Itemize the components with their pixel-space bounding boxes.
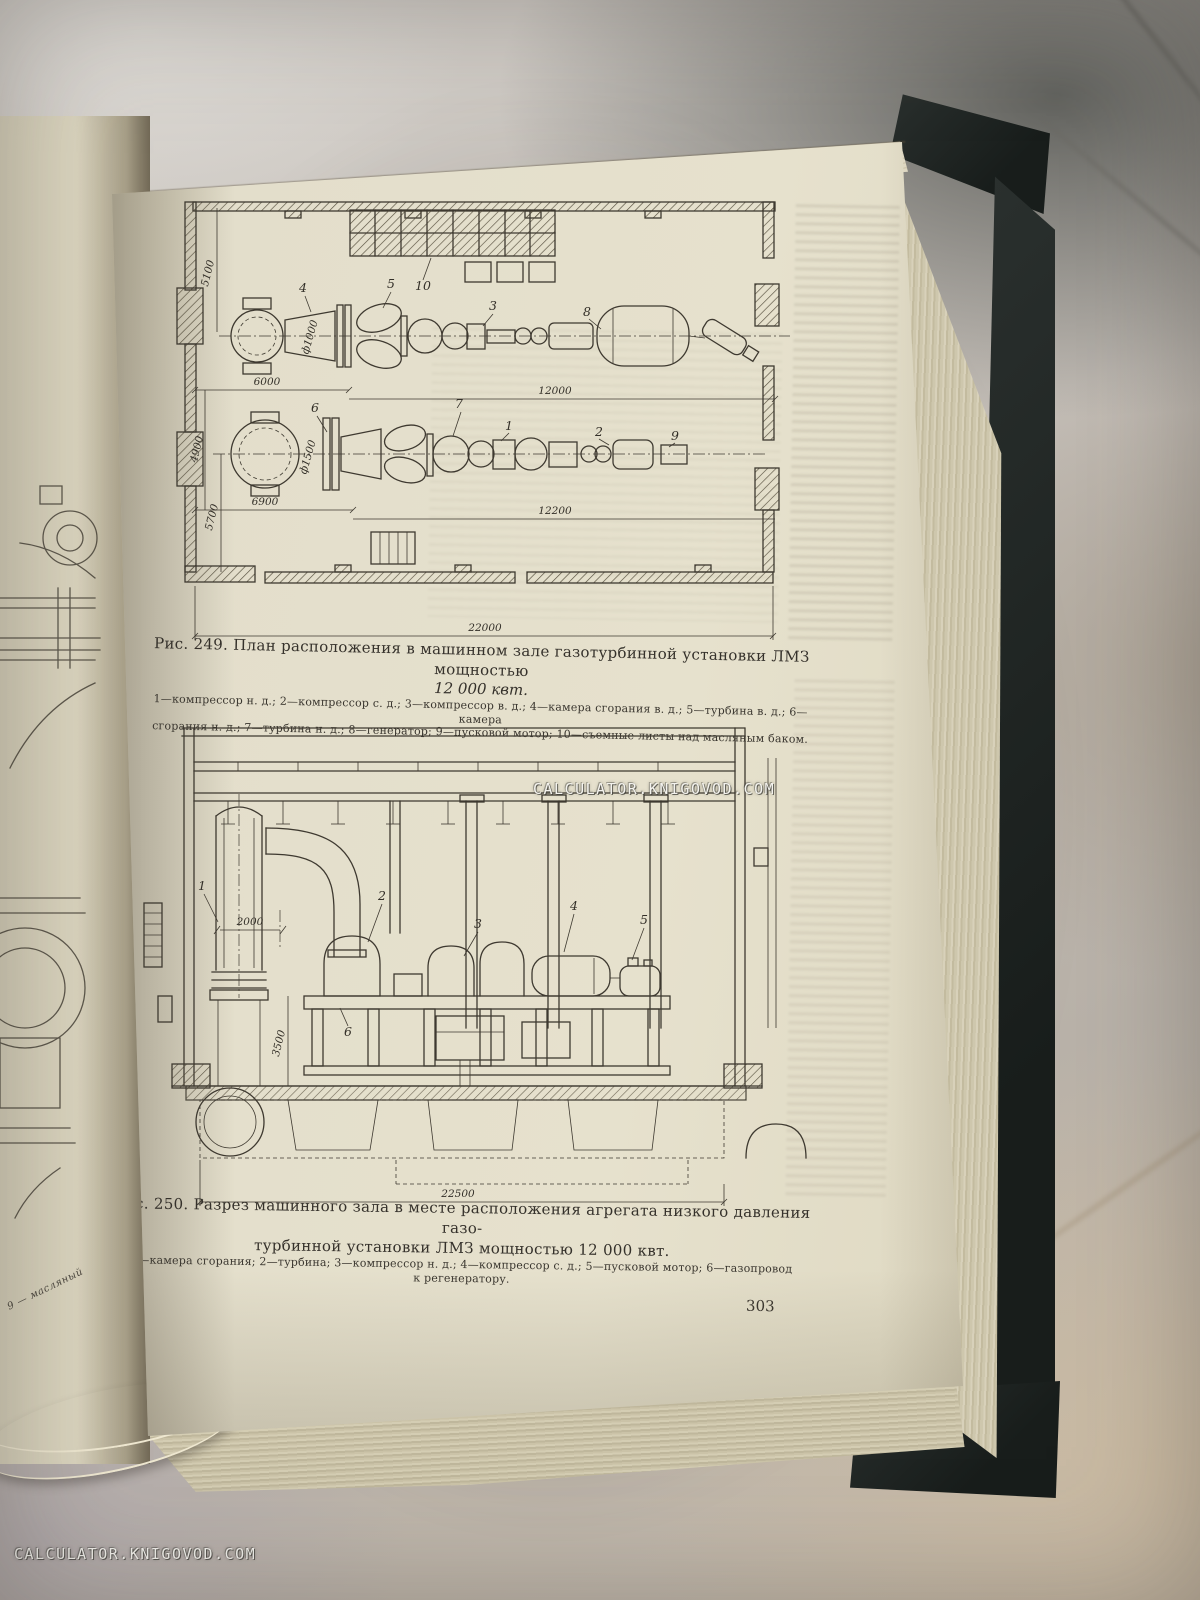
- svg-text:3: 3: [474, 916, 482, 931]
- removable-sheets-panel: [350, 210, 555, 256]
- svg-text:8: 8: [583, 304, 591, 319]
- svg-text:5: 5: [640, 912, 648, 927]
- svg-text:2: 2: [377, 888, 386, 903]
- svg-text:2000: 2000: [236, 916, 264, 928]
- svg-text:10: 10: [415, 278, 431, 293]
- svg-text:6000: 6000: [254, 376, 281, 388]
- svg-text:ф1000: ф1000: [300, 318, 321, 355]
- svg-text:6: 6: [311, 400, 319, 415]
- svg-text:3500: 3500: [270, 1029, 288, 1058]
- svg-text:1: 1: [198, 878, 206, 893]
- svg-text:5: 5: [387, 276, 395, 291]
- svg-text:7: 7: [455, 396, 463, 411]
- window-blocks: [465, 262, 555, 282]
- svg-text:4: 4: [298, 280, 307, 295]
- svg-text:5100: 5100: [199, 259, 217, 288]
- svg-text:6: 6: [344, 1024, 352, 1039]
- marble-vein: [1080, 0, 1200, 121]
- photo-of-open-book: 9 — масляный: [0, 0, 1200, 1600]
- svg-text:6900: 6900: [252, 496, 279, 508]
- svg-text:1: 1: [505, 418, 513, 433]
- stairs: [371, 532, 415, 564]
- figure-249-plan-drawing: 5100 6000 12000 4900 6900 12200 5700 220…: [165, 188, 810, 653]
- svg-text:12200: 12200: [538, 505, 572, 517]
- svg-text:5700: 5700: [203, 503, 221, 532]
- figure-250-section-drawing: 2000 3500 22500 1 2 3 4 5 6: [128, 698, 808, 1218]
- svg-text:22000: 22000: [467, 622, 502, 634]
- svg-text:12000: 12000: [538, 385, 572, 397]
- item-number-labels-249: 4 5 10 3 8 6 7 1 2 9: [298, 258, 679, 447]
- left-page-legend-fragment: 9 — масляный: [6, 1266, 85, 1312]
- columns: [390, 795, 668, 1028]
- dimension-labels-250: 2000 3500 22500: [236, 916, 475, 1200]
- foundation-and-ground: [172, 1086, 806, 1184]
- watermark-center: CALCULATOR.KNIGOVOD.COM: [533, 780, 775, 798]
- building-walls: [177, 202, 779, 583]
- svg-text:4: 4: [569, 898, 578, 913]
- turbine-train-lower: [213, 412, 765, 496]
- svg-text:3: 3: [489, 298, 497, 313]
- svg-text:9: 9: [671, 428, 679, 443]
- svg-text:2: 2: [594, 424, 603, 439]
- svg-text:ф1500: ф1500: [298, 438, 319, 475]
- item-number-labels-250: 1 2 3 4 5 6: [198, 878, 648, 1039]
- watermark-bottom-left: CALCULATOR.KNIGOVOD.COM: [14, 1545, 256, 1563]
